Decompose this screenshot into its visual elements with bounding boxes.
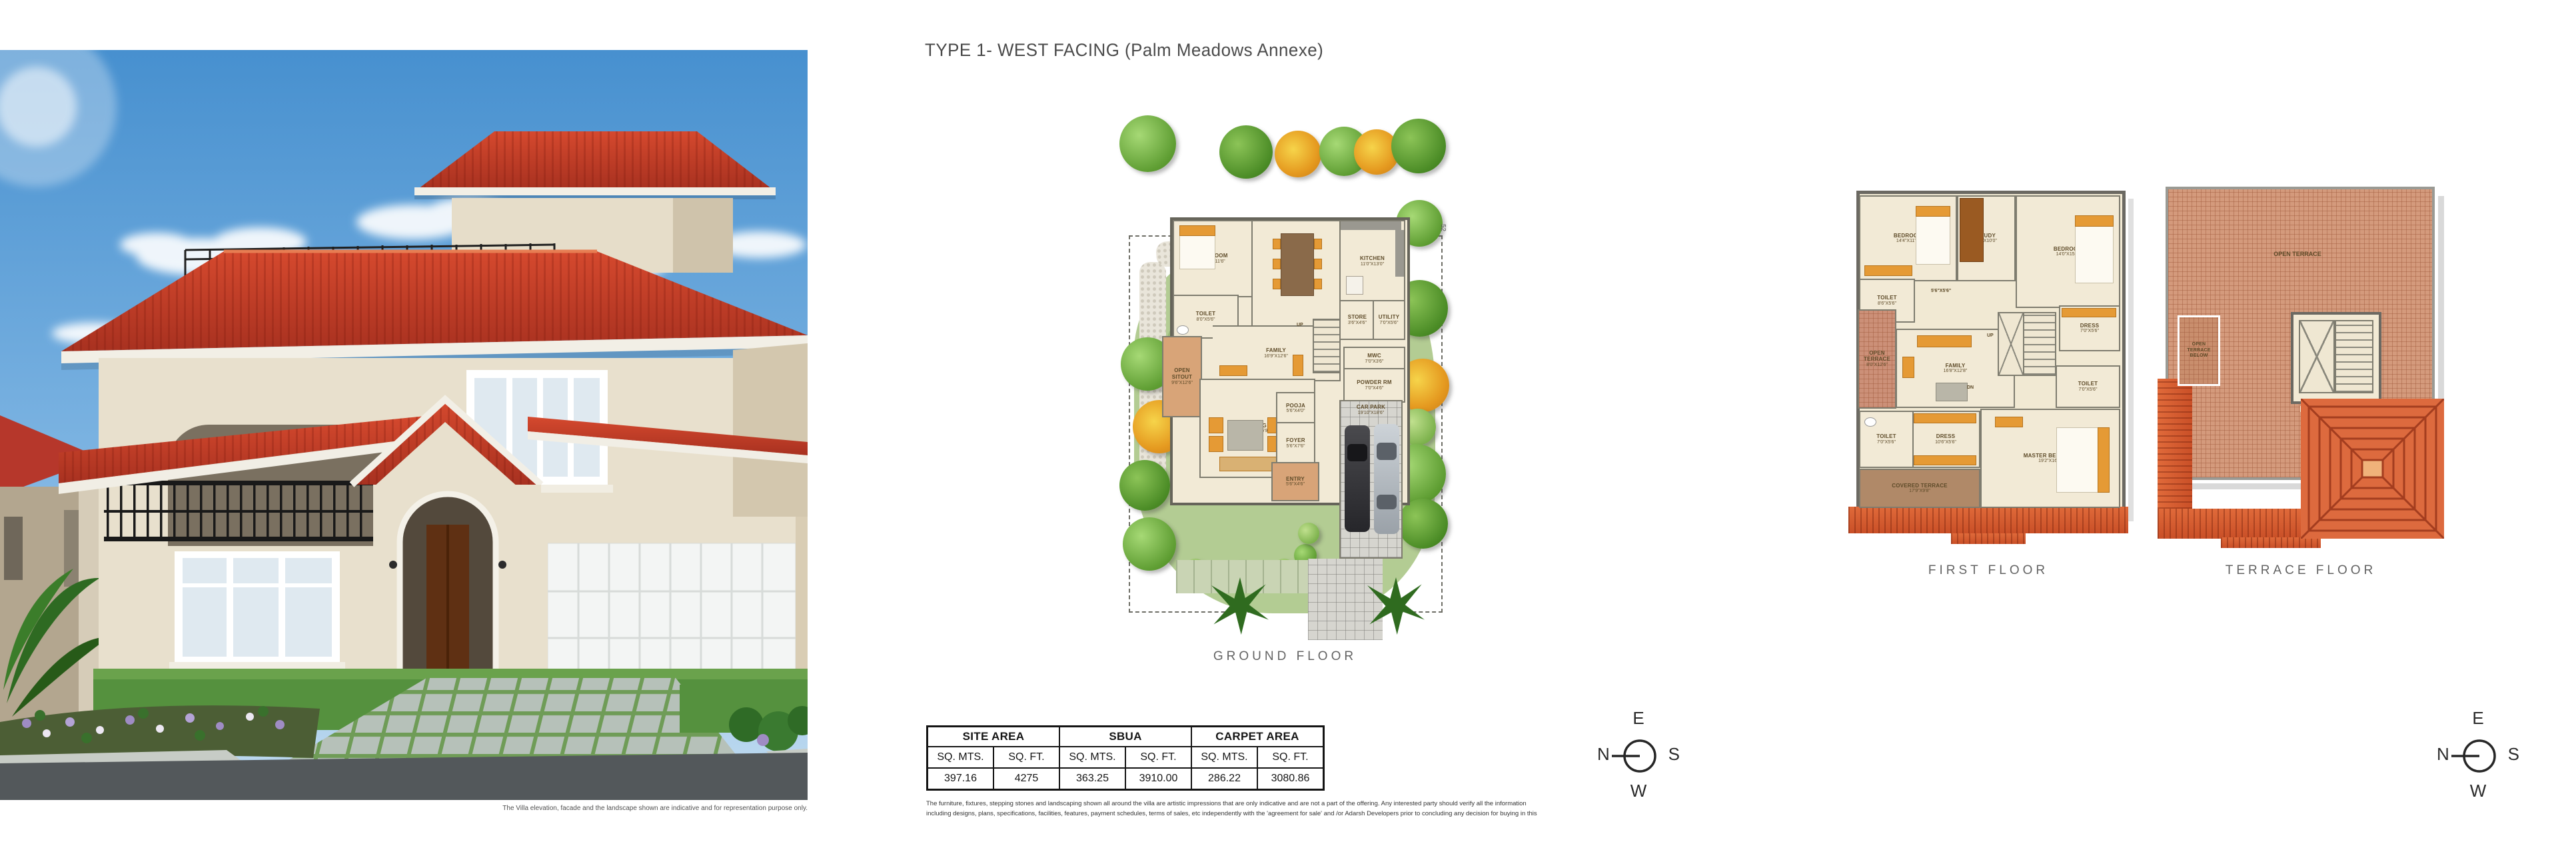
value-cell: 3080.86 [1257, 768, 1324, 790]
bed-headboard [2098, 427, 2110, 493]
room-entry: ENTRY 5'6"X4'6" [1271, 462, 1319, 501]
room-kitchen: KITCHEN 11'0"X13'0" [1339, 220, 1405, 303]
stair-void [1998, 312, 2024, 376]
room-dims: 7'0"X5'6" [1877, 440, 1896, 445]
room-label: STORE [1348, 314, 1367, 321]
room-label: TOILET [2078, 381, 2098, 387]
room-label: ENTRY [1286, 476, 1305, 483]
chair [1273, 279, 1281, 289]
car-windshield [1347, 444, 1367, 461]
room-label: MWC [1367, 353, 1381, 359]
chair [1314, 259, 1322, 269]
room-bedroom-2: BEDROOM 14'0"X15'4" [2016, 195, 2120, 308]
roof-edge [1848, 507, 2128, 533]
compass-west: W [1630, 781, 1647, 801]
room-label: FAMILY [1266, 347, 1286, 354]
sofa [1219, 457, 1278, 471]
pyramid-roof [2301, 399, 2444, 539]
room-label: DRESS [2080, 323, 2100, 329]
room-covered-terrace: COVERED TERRACE 17'9"X9'8" [1859, 469, 1980, 508]
disclaimer-line-2: including designs, plans, specifications… [926, 809, 1569, 819]
room-dress-2: DRESS 10'6"X5'6" [1911, 411, 1980, 468]
sofa [1219, 365, 1247, 376]
room-store: STORE 3'6"X4'6" [1339, 300, 1375, 340]
wardrobe [1960, 198, 1984, 262]
room-dining: DINING 12'0"X17'4" [1251, 220, 1342, 328]
room-dims: 7'0"X5'6" [2080, 329, 2099, 334]
landscape [0, 669, 808, 800]
room-dims: 7'0"X4'6" [1365, 386, 1384, 391]
value-cell: 4275 [993, 768, 1059, 790]
stairs-up-label: UP [1987, 333, 1994, 338]
pyramid-roof-icon [2301, 399, 2444, 539]
room-dims: 3'6"X4'6" [1348, 321, 1367, 326]
room-bedroom-1: BEDROOM 14'4"X11'6" [1859, 195, 1957, 281]
tree [1398, 499, 1448, 549]
table-header-row: SITE AREA SBUA CARPET AREA [928, 727, 1324, 747]
armchair [1209, 417, 1223, 433]
room-label: POOJA [1286, 403, 1305, 409]
compass-south: S [2508, 744, 2519, 765]
sofa [1293, 355, 1303, 376]
tree [1219, 125, 1273, 179]
room-dims: 7'0"X5'6" [2079, 387, 2098, 393]
open-terrace-label: OPEN TERRACE [2198, 251, 2397, 257]
room-dims: 16'8"X12'8" [1944, 369, 1968, 374]
compass: E N S W [2434, 711, 2522, 799]
wardrobe [2062, 308, 2116, 317]
fridge [1346, 276, 1363, 295]
col-carpet-area: CARPET AREA [1191, 727, 1324, 747]
room-label: CAR PARK [1357, 404, 1385, 411]
kitchen-counter [1395, 230, 1404, 277]
first-floor-plan: BEDROOM 14'4"X11'6" STUDY 8'0"X10'0" BED… [1852, 179, 2124, 549]
armchair [1209, 436, 1223, 452]
room-open-terrace: OPEN TERRACE 8'0"X12'6" [1858, 309, 1896, 409]
room-dims: 19'10"X18'6" [1358, 411, 1385, 416]
room-bedroom: BEDROOM 12'6"X11'6" [1173, 220, 1254, 297]
chair [1314, 279, 1322, 289]
room-dims: 5'6"X4'0" [1287, 409, 1305, 414]
room-utility: UTILITY 7'0"X5'6" [1373, 300, 1405, 340]
unit-cell: SQ. MTS. [1059, 747, 1125, 768]
stairs-dn-label: DN [1967, 385, 1974, 390]
room-pooja: POOJA 5'6"X4'0" [1276, 392, 1315, 425]
tree [1391, 119, 1446, 173]
room-label: OPEN TERRACE [1859, 350, 1895, 363]
tree-orange [1275, 131, 1321, 177]
terrace-floor-label: TERRACE FLOOR [2158, 563, 2444, 578]
room-label: FAMILY [1946, 363, 1966, 369]
room-label: DRESS [1936, 433, 1956, 440]
chair [1314, 239, 1322, 249]
tree [1119, 460, 1170, 511]
unit-cell: SQ. FT. [1125, 747, 1191, 768]
unit-cell: SQ. FT. [1257, 747, 1324, 768]
room-car-park: CAR PARK 19'10"X18'6" [1339, 400, 1403, 559]
staircase [2020, 312, 2056, 376]
table-units-row: SQ. MTS. SQ. FT. SQ. MTS. SQ. FT. SQ. MT… [928, 747, 1324, 768]
compass: E N S W [1595, 711, 1682, 799]
bush [1298, 523, 1319, 544]
stair-void [2299, 320, 2335, 393]
table-values-row: 397.16 4275 363.25 3910.00 286.22 3080.8… [928, 768, 1324, 790]
villa-photo-illustration [0, 50, 808, 800]
tree [1123, 517, 1176, 571]
room-label: COVERED TERRACE [1892, 483, 1947, 489]
car-windshield [1377, 443, 1397, 460]
room-dims: 7'0"X5'6" [1380, 321, 1399, 326]
roof-edge-bump [1951, 533, 2026, 544]
toilet-fixture [1864, 417, 1876, 427]
room-label: FOYER [1286, 437, 1305, 444]
room-dims: 9'6"X12'6" [1171, 381, 1193, 386]
unit-cell: SQ. MTS. [928, 747, 994, 768]
wardrobe [1864, 265, 1912, 276]
room-mwc: MWC 7'0"X3'6" [1343, 347, 1405, 371]
car-dark [1345, 425, 1370, 532]
stairs-up-label: UP [1297, 323, 1303, 327]
bed [2056, 427, 2099, 493]
room-dims: 5'6"X7'6" [1287, 444, 1305, 449]
room-toilet-2: TOILET 7'0"X5'6" [2056, 365, 2120, 408]
sofa [1917, 335, 1972, 347]
room-foyer: FOYER 5'6"X7'6" [1276, 422, 1315, 465]
bed-pillows [2075, 215, 2114, 227]
room-powder-rm: POWDER RM 7'0"X4'6" [1343, 368, 1405, 403]
villa-photo-caption: The Villa elevation, facade and the land… [400, 805, 808, 812]
room-dims: 11'0"X13'0" [1361, 262, 1384, 267]
terrace-floor-plan: OPEN TERRACE OPEN TERRACE BELOW DN [2158, 179, 2444, 549]
value-cell: 397.16 [928, 768, 994, 790]
armchair [1902, 357, 1914, 378]
room-dress-1: DRESS 7'0"X5'6" [2059, 305, 2120, 351]
compass-east: E [1632, 708, 1644, 729]
tree [1119, 115, 1176, 172]
compass-south: S [1668, 744, 1680, 765]
ground-floor-label: GROUND FLOOR [1119, 649, 1451, 664]
room-toilet-3: TOILET 7'0"X5'6" [1859, 411, 1914, 468]
plot-number: 52 [1439, 224, 1447, 231]
room-open-sitout: OPEN SITOUT 9'6"X12'6" [1162, 336, 1202, 417]
first-floor-label: FIRST FLOOR [1852, 563, 2124, 578]
room-label: TOILET [1196, 311, 1216, 317]
driveway [1308, 559, 1383, 640]
coffee-table [1227, 420, 1263, 451]
unit-cell: SQ. FT. [993, 747, 1059, 768]
passage-dims: 5'6"X5'6" [1931, 289, 1951, 293]
page-title: TYPE 1- WEST FACING (Palm Meadows Annexe… [925, 40, 1323, 61]
room-dims: 7'0"X3'6" [1365, 359, 1384, 365]
dining-table [1281, 233, 1314, 296]
chair [1273, 239, 1281, 249]
disclaimer-line-1: The furniture, fixtures, stepping stones… [926, 799, 1569, 809]
room-label: TOILET [1876, 433, 1896, 440]
compass-east: E [2472, 708, 2483, 729]
wardrobe [1914, 413, 1976, 423]
dresser [1995, 417, 2023, 427]
room-dims: 17'9"X9'8" [1909, 489, 1930, 494]
unit-cell: SQ. MTS. [1191, 747, 1257, 768]
room-open-terrace-below: OPEN TERRACE BELOW [2178, 315, 2220, 386]
stairwell: DN [2291, 312, 2381, 404]
car-window [1377, 495, 1397, 509]
room-master-bedroom: MASTER BEDROOM 19'2"X16'8" [1980, 409, 2120, 508]
roof-edge-bump [2221, 537, 2321, 548]
ground-floor-plan: 52 BEDROOM 12'6"X11'6" TOILET 8'0"X5'6" … [1119, 99, 1451, 640]
room-dims: 10'6"X5'6" [1935, 440, 1956, 445]
room-dims: 8'0"X5'6" [1197, 317, 1215, 323]
compass-north: N [1597, 744, 1610, 765]
value-cell: 286.22 [1191, 768, 1257, 790]
bed-pillows [1916, 206, 1950, 217]
room-dims: 5'6"X4'6" [1286, 482, 1305, 487]
col-site-area: SITE AREA [928, 727, 1060, 747]
room-label: KITCHEN [1360, 255, 1385, 262]
compass-west: W [2470, 781, 2487, 801]
col-sbua: SBUA [1059, 727, 1191, 747]
compass-north: N [2437, 744, 2449, 765]
area-table: SITE AREA SBUA CARPET AREA SQ. MTS. SQ. … [926, 725, 1325, 791]
value-cell: 3910.00 [1125, 768, 1191, 790]
room-study: STUDY 8'0"X10'0" [1957, 195, 2016, 281]
room-dims: 8'0"X12'6" [1866, 363, 1888, 368]
wardrobe [1914, 455, 1976, 465]
brochure-page: The Villa elevation, facade and the land… [0, 0, 2576, 850]
room-label: UTILITY [1379, 314, 1400, 321]
room-dims: 8'6"X5'6" [1878, 301, 1896, 307]
kitchen-counter [1341, 221, 1401, 230]
room-label: POWDER RM [1357, 379, 1391, 386]
room-label: OPEN SITOUT [1163, 367, 1201, 380]
room-dims: 16'9"X12'6" [1264, 354, 1288, 359]
chair [1273, 259, 1281, 269]
room-label: OPEN TERRACE BELOW [2180, 342, 2218, 359]
disclaimer-text: The furniture, fixtures, stepping stones… [926, 799, 1569, 819]
toilet-fixture [1177, 325, 1189, 335]
table [1936, 383, 1968, 401]
garage-door [548, 543, 796, 685]
staircase [2335, 320, 2373, 393]
furniture [1179, 225, 1215, 236]
staircase [1313, 319, 1341, 373]
room-label: TOILET [1877, 295, 1897, 301]
value-cell: 363.25 [1059, 768, 1125, 790]
car-silver [1374, 424, 1399, 534]
